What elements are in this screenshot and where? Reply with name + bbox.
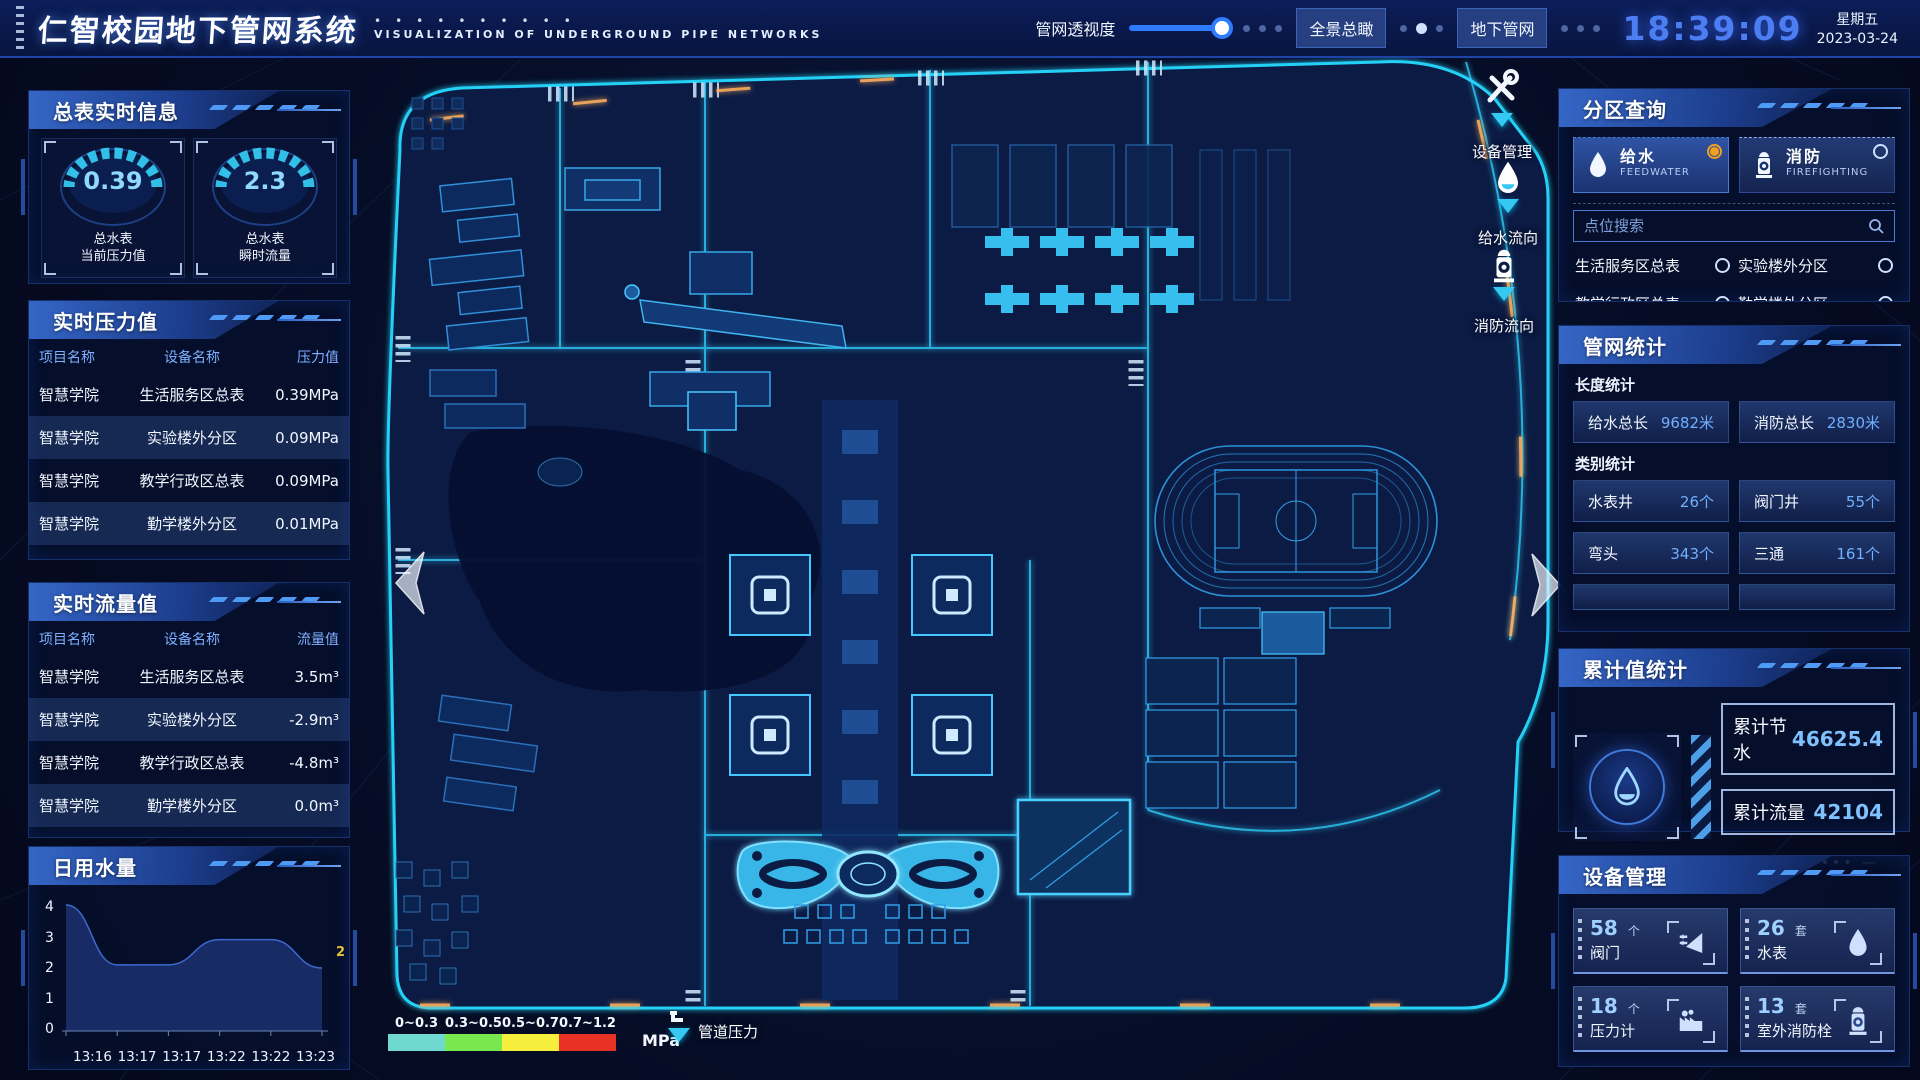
tab-label: 给水 bbox=[1620, 149, 1690, 165]
chevron-down-icon bbox=[1491, 113, 1513, 138]
tab-firefighting[interactable]: 消防 FIREFIGHTING bbox=[1739, 137, 1895, 193]
realtime-pressure-panel: 实时压力值 项目名称设备名称压力值 智慧学院生活服务区总表0.39MPa 智慧学… bbox=[28, 300, 350, 560]
pipe-stats-panel: 管网统计 长度统计 给水总长9682米 消防总长2830米 类别统计 水表井26… bbox=[1558, 325, 1910, 632]
chevron-down-icon bbox=[1493, 287, 1515, 312]
clock: 18:39:09 星期五 2023-03-24 bbox=[1622, 9, 1898, 48]
pipe-pressure-marker: 管道压力 bbox=[668, 1010, 758, 1053]
dashed-divider bbox=[1573, 203, 1895, 204]
search-icon[interactable] bbox=[1868, 218, 1884, 234]
panel-title: 管网统计 bbox=[1559, 331, 1667, 360]
dot-separator bbox=[1243, 25, 1282, 32]
clock-date: 2023-03-24 bbox=[1817, 31, 1898, 47]
table-row: 智慧学院生活服务区总表0.39MPa bbox=[29, 373, 349, 416]
chart-y-axis: 43 21 0 bbox=[39, 899, 62, 1037]
stat-clipped bbox=[1573, 584, 1729, 610]
tools-icon bbox=[1480, 66, 1524, 110]
legend-color-swatch bbox=[388, 1034, 445, 1051]
top-bar: 仁智校园地下管网系统 •••••••••• VISUALIZATION OF U… bbox=[0, 0, 1920, 58]
panel-title: 日用水量 bbox=[29, 852, 137, 881]
slider-thumb-icon[interactable] bbox=[1211, 17, 1233, 39]
clock-time: 18:39:09 bbox=[1622, 9, 1802, 48]
table-row: 智慧学院教学行政区总表0.09MPa bbox=[29, 459, 349, 502]
table-row: 智慧学院实验楼外分区-2.9m³ bbox=[29, 698, 349, 741]
table-header: 项目名称设备名称流量值 bbox=[29, 621, 349, 655]
legend-color-swatch bbox=[559, 1034, 616, 1051]
app-title: 仁智校园地下管网系统 bbox=[36, 6, 359, 50]
map-marker-feed-flow[interactable]: 给水流向 bbox=[1478, 160, 1538, 248]
water-icon-frame bbox=[1573, 733, 1681, 841]
gauge-label: 总水表 bbox=[239, 231, 291, 248]
tab-sublabel: FEEDWATER bbox=[1620, 165, 1690, 181]
gauge-dial-icon: 2.3 bbox=[205, 143, 325, 229]
edge-decoration bbox=[16, 6, 24, 50]
table-row: 智慧学院勤学楼外分区0.0m³ bbox=[29, 784, 349, 827]
stat-feed-length: 给水总长9682米 bbox=[1573, 401, 1729, 443]
accumulated-flow-row: 累计流量 42104 bbox=[1721, 789, 1895, 835]
daily-water-panel: 日用水量 43 21 0 13:1613:1713:17 13:2213:221… bbox=[28, 846, 350, 1070]
water-drop-icon bbox=[1586, 151, 1610, 179]
clock-weekday: 星期五 bbox=[1836, 9, 1878, 29]
legend-color-swatch bbox=[445, 1034, 502, 1051]
device-card-pressure-gauge[interactable]: 18个 压力计 bbox=[1573, 986, 1728, 1052]
area-chart bbox=[62, 899, 328, 1039]
stat-tee: 三通161个 bbox=[1739, 532, 1895, 574]
table-row: 智慧学院实验楼外分区0.09MPa bbox=[29, 416, 349, 459]
panel-title: 设备管理 bbox=[1559, 861, 1667, 890]
panel-title: 实时压力值 bbox=[29, 306, 158, 335]
panel-title: 累计值统计 bbox=[1559, 654, 1688, 683]
realtime-flow-panel: 实时流量值 项目名称设备名称流量值 智慧学院生活服务区总表3.5m³ 智慧学院实… bbox=[28, 582, 350, 838]
point-search[interactable] bbox=[1573, 210, 1895, 242]
table-row: 智慧学院教学行政区总表-4.8m³ bbox=[29, 741, 349, 784]
map-marker-device-management[interactable]: 设备管理 bbox=[1472, 66, 1532, 162]
table-row: 智慧学院勤学楼外分区0.01MPa bbox=[29, 502, 349, 545]
gauge-label: 总水表 bbox=[80, 231, 145, 248]
stat-clipped bbox=[1739, 584, 1895, 610]
panel-title: 总表实时信息 bbox=[29, 96, 179, 125]
device-card-water-meter[interactable]: 26套 水表 bbox=[1740, 908, 1895, 974]
radio-icon[interactable] bbox=[1878, 296, 1893, 303]
stat-water-meter-well: 水表井26个 bbox=[1573, 480, 1729, 522]
valve-icon bbox=[1676, 928, 1706, 958]
dot-separator bbox=[1400, 23, 1443, 34]
table-row: 智慧学院生活服务区总表3.5m³ bbox=[29, 655, 349, 698]
daily-water-chart: 43 21 0 13:1613:1713:17 13:2213:2213:23 … bbox=[29, 885, 349, 1065]
chart-end-value: 2 bbox=[336, 945, 345, 960]
pipe-opacity-slider[interactable] bbox=[1129, 25, 1229, 31]
water-drop-icon bbox=[1493, 160, 1523, 196]
chevron-down-icon bbox=[668, 1028, 690, 1053]
zone-option[interactable]: 实验楼外分区 bbox=[1738, 250, 1893, 280]
zone-option[interactable]: 教学行政区总表 bbox=[1575, 288, 1730, 302]
flow-gauge: 2.3 总水表 瞬时流量 bbox=[194, 139, 336, 277]
dot-row-decoration: •••••••••• bbox=[374, 16, 822, 26]
underground-pipe-button[interactable]: 地下管网 bbox=[1457, 8, 1547, 48]
device-card-hydrant[interactable]: 13套 室外消防栓 bbox=[1740, 986, 1895, 1052]
overview-button[interactable]: 全景总瞰 bbox=[1296, 8, 1386, 48]
hydrant-icon bbox=[1845, 1006, 1871, 1036]
device-management-panel: 设备管理 58个 阀门 26套 水表 bbox=[1558, 855, 1910, 1067]
svg-text:0.39: 0.39 bbox=[83, 167, 142, 195]
accumulated-stats-panel: 累计值统计 累计节水 46625.4 累计流量 42104 ••• — bbox=[1558, 648, 1910, 832]
panel-title: 实时流量值 bbox=[29, 588, 158, 617]
stat-valve-well: 阀门井55个 bbox=[1739, 480, 1895, 522]
hydrant-icon bbox=[1489, 248, 1519, 284]
map-pan-left-arrow[interactable] bbox=[386, 548, 430, 622]
svg-text:2.3: 2.3 bbox=[244, 167, 287, 195]
chevron-down-icon bbox=[1497, 199, 1519, 224]
stat-elbow: 弯头343个 bbox=[1573, 532, 1729, 574]
gauge-label: 当前压力值 bbox=[80, 248, 145, 265]
zone-query-panel: 分区查询 给水 FEEDWATER 消防 FIREFIGHTING bbox=[1558, 88, 1910, 302]
table-header: 项目名称设备名称压力值 bbox=[29, 339, 349, 373]
panel-title: 分区查询 bbox=[1559, 94, 1667, 123]
pipe-opacity-label: 管网透视度 bbox=[1035, 16, 1115, 40]
device-card-valve[interactable]: 58个 阀门 bbox=[1573, 908, 1728, 974]
zone-option[interactable]: 勤学楼外分区 bbox=[1738, 288, 1893, 302]
meter-realtime-panel: 总表实时信息 0.39 总水表 当前压力值 2.3 bbox=[28, 90, 350, 284]
zone-option[interactable]: 生活服务区总表 bbox=[1575, 250, 1730, 280]
tab-feedwater[interactable]: 给水 FEEDWATER bbox=[1573, 137, 1729, 193]
radio-selected-icon[interactable] bbox=[1707, 144, 1722, 159]
accumulated-saving-row: 累计节水 46625.4 bbox=[1721, 703, 1895, 775]
category-stats-label: 类别统计 bbox=[1559, 443, 1909, 480]
tab-sublabel: FIREFIGHTING bbox=[1786, 165, 1868, 181]
pipe-icon bbox=[669, 1010, 689, 1028]
legend-color-swatch bbox=[502, 1034, 559, 1051]
radio-icon[interactable] bbox=[1715, 296, 1730, 303]
stat-fire-length: 消防总长2830米 bbox=[1739, 401, 1895, 443]
radio-icon[interactable] bbox=[1715, 258, 1730, 273]
pressure-gauge-icon bbox=[1676, 1006, 1706, 1036]
gauge-label: 瞬时流量 bbox=[239, 248, 291, 265]
dot-separator bbox=[1561, 25, 1600, 32]
search-input[interactable] bbox=[1584, 217, 1868, 235]
radio-icon[interactable] bbox=[1878, 258, 1893, 273]
water-drop-icon bbox=[1845, 928, 1871, 958]
length-stats-label: 长度统计 bbox=[1559, 364, 1909, 401]
hydrant-icon bbox=[1752, 151, 1776, 179]
app-subtitle-block: •••••••••• VISUALIZATION OF UNDERGROUND … bbox=[374, 16, 822, 41]
radio-icon[interactable] bbox=[1873, 144, 1888, 159]
chart-x-axis: 13:1613:1713:17 13:2213:2213:23 bbox=[39, 1043, 337, 1065]
pressure-gauge: 0.39 总水表 当前压力值 bbox=[42, 139, 184, 277]
hatch-decoration bbox=[1691, 735, 1711, 839]
table-row: 智慧学院砺学楼外分区0.09MPa bbox=[29, 545, 349, 560]
map-marker-fire-flow[interactable]: 消防流向 bbox=[1474, 248, 1534, 336]
gauge-dial-icon: 0.39 bbox=[53, 143, 173, 229]
water-drop-icon bbox=[1610, 767, 1644, 807]
tab-label: 消防 bbox=[1786, 149, 1868, 165]
app-subtitle: VISUALIZATION OF UNDERGROUND PIPE NETWOR… bbox=[374, 28, 822, 41]
pressure-legend: 0~0.3 0.3~0.5 0.5~0.7 0.7~1.2 MPa bbox=[388, 1016, 680, 1051]
table-row: 智慧学院砺学楼外分区2.3m³ bbox=[29, 827, 349, 838]
